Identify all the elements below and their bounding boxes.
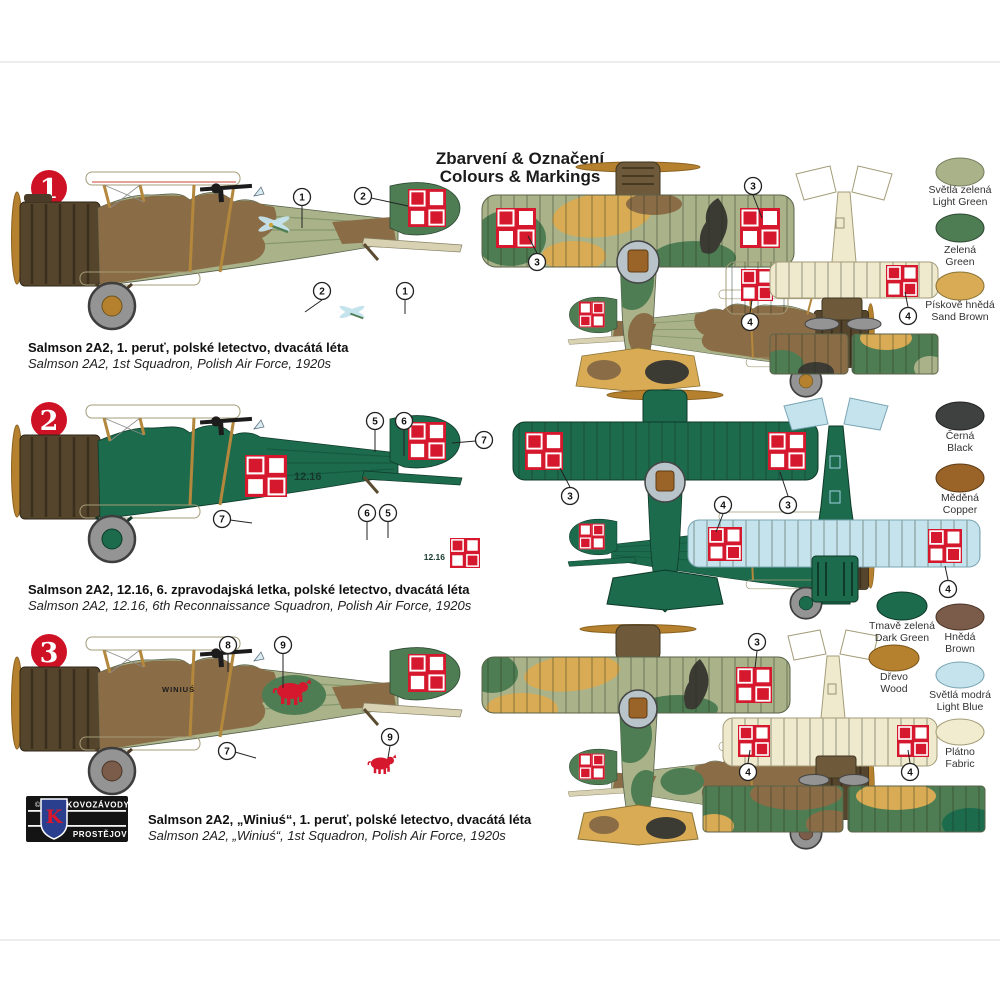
elevator-right [844,398,888,430]
checkerboard-insignia [741,269,773,301]
brand-logo: © K KOVOZÁVODY PROSTĚJOV [26,796,130,842]
engine [616,625,660,661]
svg-text:Tmavě zelená: Tmavě zelená [869,620,935,632]
svg-text:Light Blue: Light Blue [937,701,984,713]
swatch-fabric [936,719,984,745]
tailplane-black-blob [645,360,689,384]
upper-wing [86,405,240,418]
svg-text:7: 7 [219,515,225,526]
logo-monogram: K [46,806,64,828]
wing-checkerboard [886,265,918,297]
svg-text:2: 2 [360,192,366,203]
svg-text:4: 4 [907,768,913,779]
exhaust [24,194,52,202]
dragonfly-emblem-small [338,304,365,320]
upper-wing [86,637,240,650]
svg-text:4: 4 [720,501,726,512]
swatch-brown [936,604,984,630]
scheme-1-caption-czech: Salmson 2A2, 1. peruť, polské letectvo, … [28,340,349,355]
scheme-2-caption-czech: Salmson 2A2, 12.16, 6. zpravodajská letk… [28,582,470,597]
tailplane [607,570,723,610]
scheme-3-caption-english: Salmson 2A2, „Winiuś“, 1st Squadron, Pol… [148,828,506,843]
scheme-2-caption-english: Salmson 2A2, 12.16, 6th Reconnaissance S… [28,598,472,613]
scheme-2: 2 12.16 [12,390,981,619]
swatch-sand-brown [936,272,984,300]
elevator-left [784,398,828,430]
sheet-title-english: Colours & Markings [440,167,601,186]
sheet-bottom-edge [0,939,1000,941]
engine-underside [822,298,862,320]
svg-text:1: 1 [299,193,305,204]
svg-text:Dark Green: Dark Green [875,632,929,644]
logo-brand-line1: KOVOZÁVODY [67,801,130,810]
svg-text:Světlá zelená: Světlá zelená [928,184,991,196]
scheme-1: 1 [12,162,947,397]
wheel-right [847,318,881,330]
wheel-left [805,318,839,330]
svg-text:Fabric: Fabric [945,758,974,770]
svg-text:Zelená: Zelená [944,244,976,256]
scheme-3: 3 [12,625,999,849]
rudder-checkerboard-insignia [408,654,446,692]
wing-checkerboard-right [897,725,929,757]
windscreen [254,187,264,196]
svg-text:Sand Brown: Sand Brown [931,311,988,323]
wing-checkerboard-left [525,432,563,470]
svg-text:2: 2 [319,287,325,298]
svg-text:7: 7 [224,747,230,758]
markings-sheet: Zbarvení & Označení Colours & Markings 1 [0,0,1000,1000]
boar-emblem-small [368,755,396,775]
upper-wing [86,172,240,185]
tailplane-brown-blob [587,360,621,380]
scheme-2-fuselage-code: 12.16 [294,471,322,483]
svg-text:3: 3 [534,258,540,269]
wing-checkerboard-left [496,208,536,248]
svg-text:3: 3 [785,501,791,512]
svg-text:4: 4 [745,768,751,779]
wheel-right [839,775,869,786]
swatch-dark-green [877,592,927,620]
elevator-left [788,630,826,660]
swatch-green [936,214,984,242]
svg-text:Černá: Černá [946,429,975,442]
scheme-3-side-view [12,637,463,794]
sheet-top-edge [0,61,1000,63]
svg-text:5: 5 [385,509,391,520]
rudder-checkerboard-insignia [408,422,446,460]
svg-text:Light Green: Light Green [933,196,988,208]
scheme-2-side-view [12,405,463,562]
svg-text:Hnědá: Hnědá [945,631,976,643]
svg-text:7: 7 [481,436,487,447]
svg-text:Pískově hnědá: Pískově hnědá [925,299,995,311]
wheel-hub [102,296,122,316]
svg-text:8: 8 [225,641,231,652]
cockpit [656,471,674,491]
scheme-1-side-view [12,172,463,329]
cockpit [628,250,648,272]
svg-text:1: 1 [402,287,408,298]
svg-text:Plátno: Plátno [945,746,975,758]
svg-text:9: 9 [387,733,393,744]
wing-checkerboard-left [738,725,770,757]
scheme-2-small-fuselage-checkerboard [450,538,480,568]
wing-checkerboard-right [736,667,772,703]
cockpit [629,698,647,718]
logo-copyright: © [35,801,41,809]
svg-text:3: 3 [754,638,760,649]
svg-text:4: 4 [905,312,911,323]
svg-text:3: 3 [567,492,573,503]
svg-text:6: 6 [364,509,370,520]
svg-text:9: 9 [280,641,286,652]
scheme-3-caption-czech: Salmson 2A2, „Winiuś“, 1. peruť, polské … [148,812,532,827]
tailplane-black-blob [646,817,686,839]
wheel-left [799,775,829,786]
logo-brand-line2: PROSTĚJOV [73,830,127,839]
svg-text:Brown: Brown [945,643,975,655]
swatch-wood [869,645,919,671]
colour-legend: Světlá zelená Light Green Zelená Green P… [869,158,995,770]
sheet-artwork: Zbarvení & Označení Colours & Markings 1 [0,0,1000,1000]
svg-text:Světlá modrá: Světlá modrá [929,689,991,701]
svg-text:Dřevo: Dřevo [880,671,908,683]
svg-text:Black: Black [947,442,973,454]
svg-text:3: 3 [750,182,756,193]
svg-text:4: 4 [747,318,753,329]
svg-text:Green: Green [945,256,974,268]
svg-text:6: 6 [401,417,407,428]
elevator-right [852,166,892,200]
wing-checkerboard-right [768,432,806,470]
svg-text:Copper: Copper [943,504,978,516]
scheme-2-small-fuselage-code: 12.16 [424,552,446,562]
elevator-left [796,166,836,200]
wing-checkerboard-left [708,527,742,561]
svg-text:5: 5 [372,417,378,428]
swatch-copper [936,464,984,492]
wing-checkerboard-right [928,529,962,563]
scheme-3-fuselage-name: WINIUŚ [162,685,195,694]
svg-text:4: 4 [945,585,951,596]
tailplane [362,238,462,252]
tailplane-brown-blob [589,816,619,834]
svg-text:Wood: Wood [880,683,907,695]
svg-text:Měděná: Měděná [941,492,979,504]
scheme-3-badge-number: 3 [40,638,59,669]
scheme-2-badge-number: 2 [40,406,59,437]
rudder-checkerboard-insignia [408,189,446,227]
swatch-black [936,402,984,430]
scheme-2-fuselage-checkerboard [245,455,287,497]
scheme-1-caption-english: Salmson 2A2, 1st Squadron, Polish Air Fo… [28,356,332,371]
swatch-light-green [936,158,984,186]
swatch-light-blue [936,662,984,688]
